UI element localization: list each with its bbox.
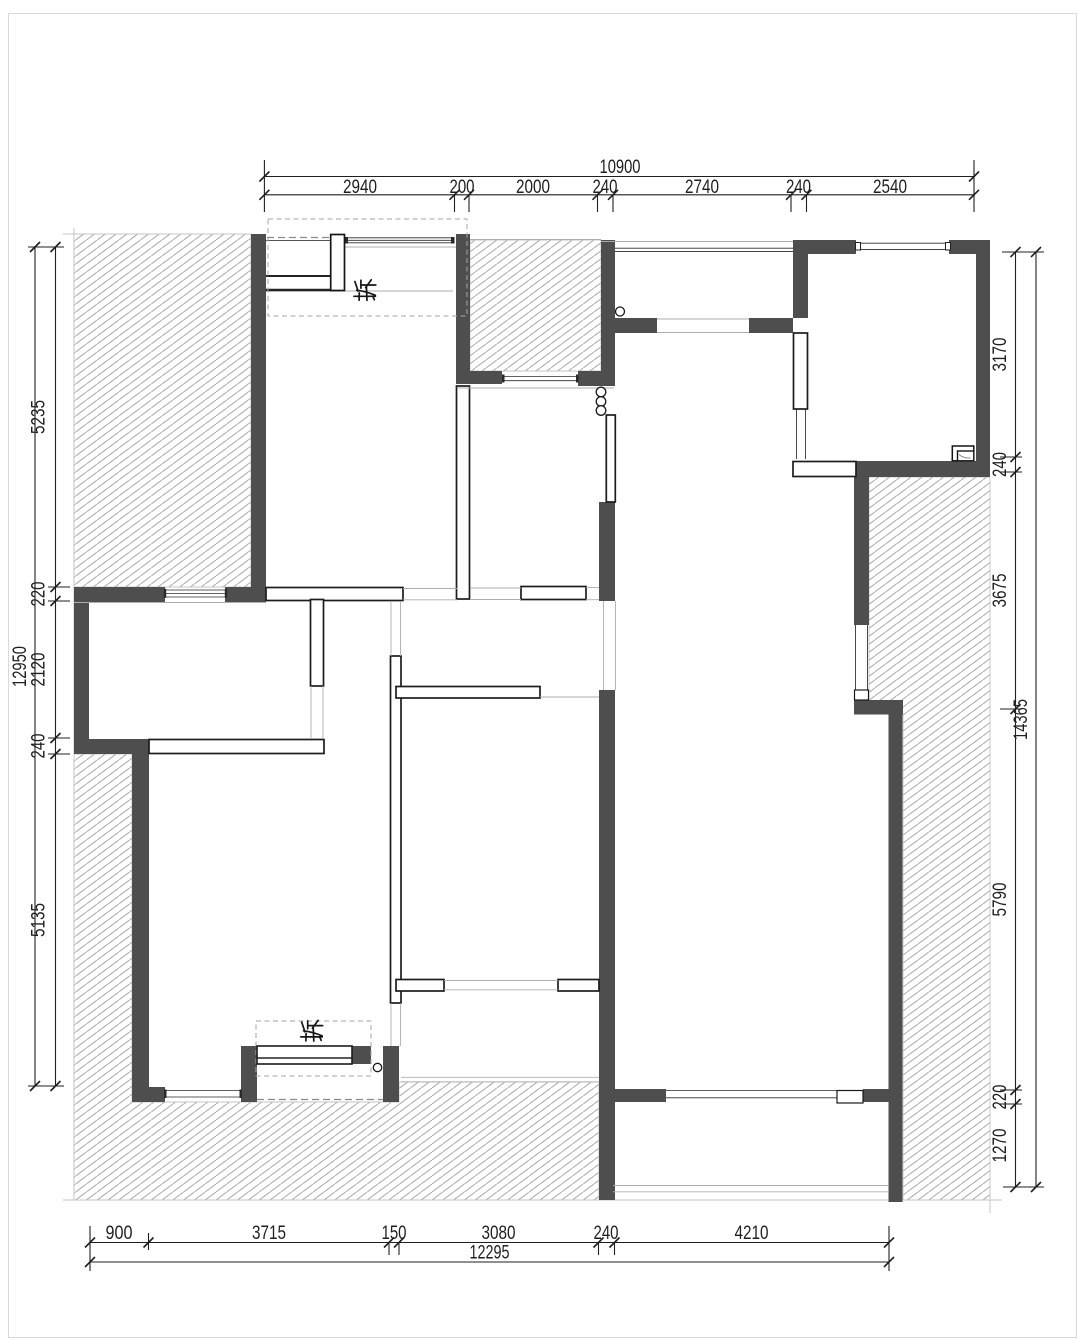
svg-text:900: 900 bbox=[106, 1223, 133, 1244]
svg-text:220: 220 bbox=[29, 582, 50, 607]
svg-text:10900: 10900 bbox=[600, 157, 641, 178]
svg-text:5235: 5235 bbox=[29, 400, 50, 434]
svg-text:200: 200 bbox=[450, 177, 475, 198]
svg-text:220: 220 bbox=[990, 1085, 1011, 1110]
svg-text:3675: 3675 bbox=[990, 574, 1011, 608]
svg-text:2000: 2000 bbox=[516, 177, 550, 198]
svg-text:2940: 2940 bbox=[343, 177, 377, 198]
svg-text:240: 240 bbox=[990, 452, 1011, 477]
svg-text:240: 240 bbox=[594, 1223, 619, 1244]
svg-text:2120: 2120 bbox=[29, 653, 50, 687]
svg-text:1270: 1270 bbox=[990, 1129, 1011, 1163]
svg-text:3715: 3715 bbox=[252, 1223, 286, 1244]
svg-text:240: 240 bbox=[786, 177, 811, 198]
svg-text:5135: 5135 bbox=[29, 903, 50, 937]
svg-text:14365: 14365 bbox=[1011, 699, 1032, 740]
svg-text:4210: 4210 bbox=[735, 1223, 769, 1244]
svg-text:5790: 5790 bbox=[990, 883, 1011, 917]
svg-text:2740: 2740 bbox=[685, 177, 719, 198]
svg-text:150: 150 bbox=[382, 1223, 407, 1244]
svg-text:3170: 3170 bbox=[990, 338, 1011, 372]
svg-text:12295: 12295 bbox=[470, 1243, 510, 1264]
svg-text:3080: 3080 bbox=[482, 1223, 516, 1244]
svg-text:240: 240 bbox=[29, 734, 50, 759]
svg-text:240: 240 bbox=[593, 177, 618, 198]
svg-text:2540: 2540 bbox=[873, 177, 907, 198]
svg-text:12950: 12950 bbox=[10, 646, 31, 687]
